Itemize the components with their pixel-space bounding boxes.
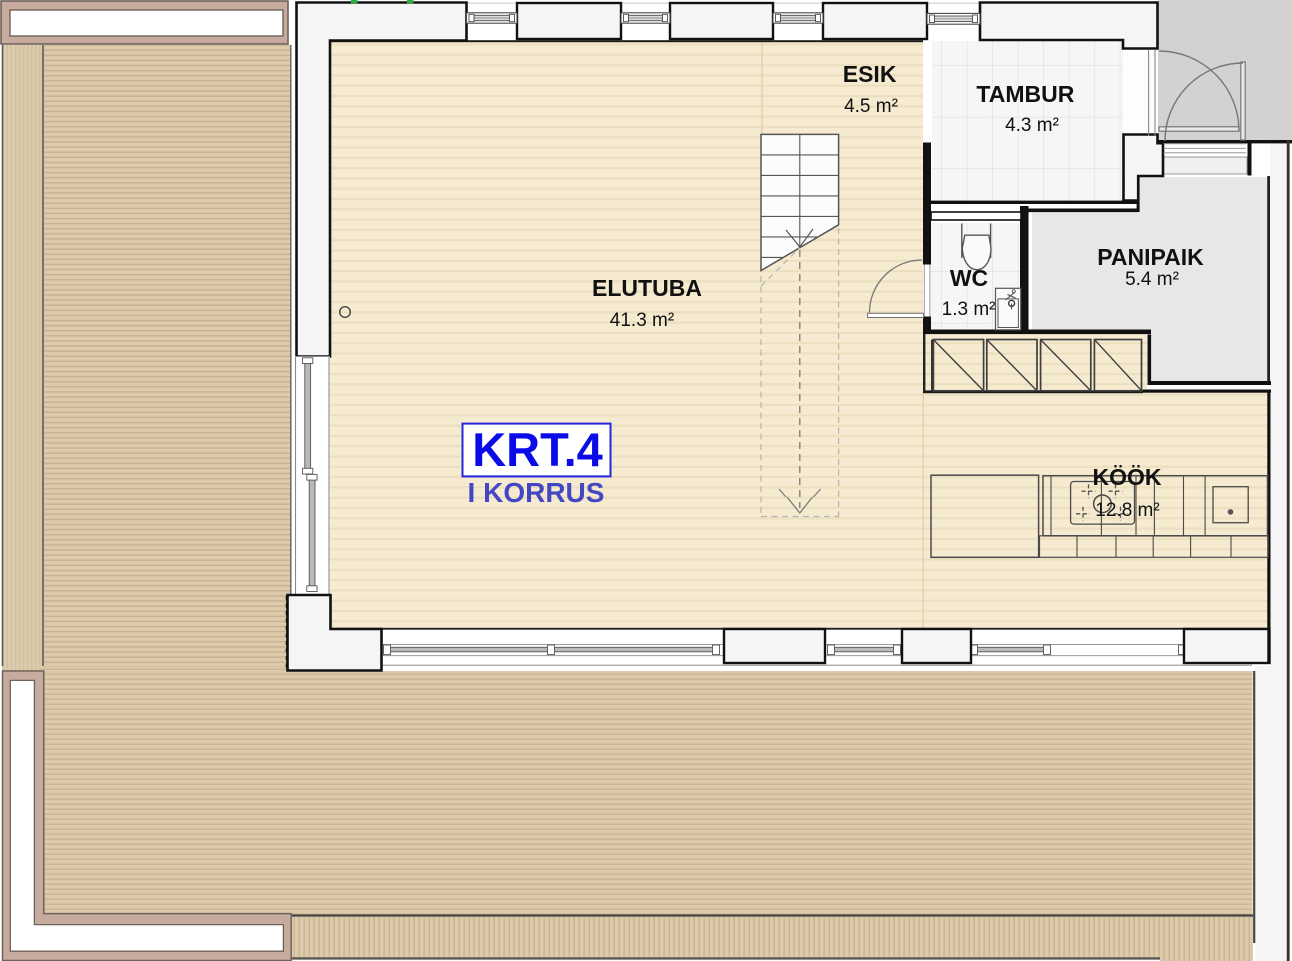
svg-text:PANIPAIK: PANIPAIK (1097, 244, 1204, 270)
svg-text:ESIK: ESIK (843, 61, 897, 87)
svg-text:4.3 m²: 4.3 m² (1005, 115, 1059, 136)
svg-text:KRT.4: KRT.4 (472, 423, 603, 476)
svg-text:1.3 m²: 1.3 m² (942, 299, 996, 320)
svg-text:WC: WC (950, 265, 988, 291)
svg-text:41.3 m²: 41.3 m² (610, 310, 674, 331)
svg-text:12.8 m²: 12.8 m² (1095, 500, 1159, 521)
svg-text:KÖÖK: KÖÖK (1093, 464, 1162, 490)
svg-text:4.5 m²: 4.5 m² (844, 96, 898, 117)
svg-text:ELUTUBA: ELUTUBA (592, 275, 702, 301)
svg-text:TAMBUR: TAMBUR (976, 81, 1074, 107)
svg-text:5.4 m²: 5.4 m² (1125, 269, 1179, 290)
svg-text:I KORRUS: I KORRUS (468, 477, 605, 508)
